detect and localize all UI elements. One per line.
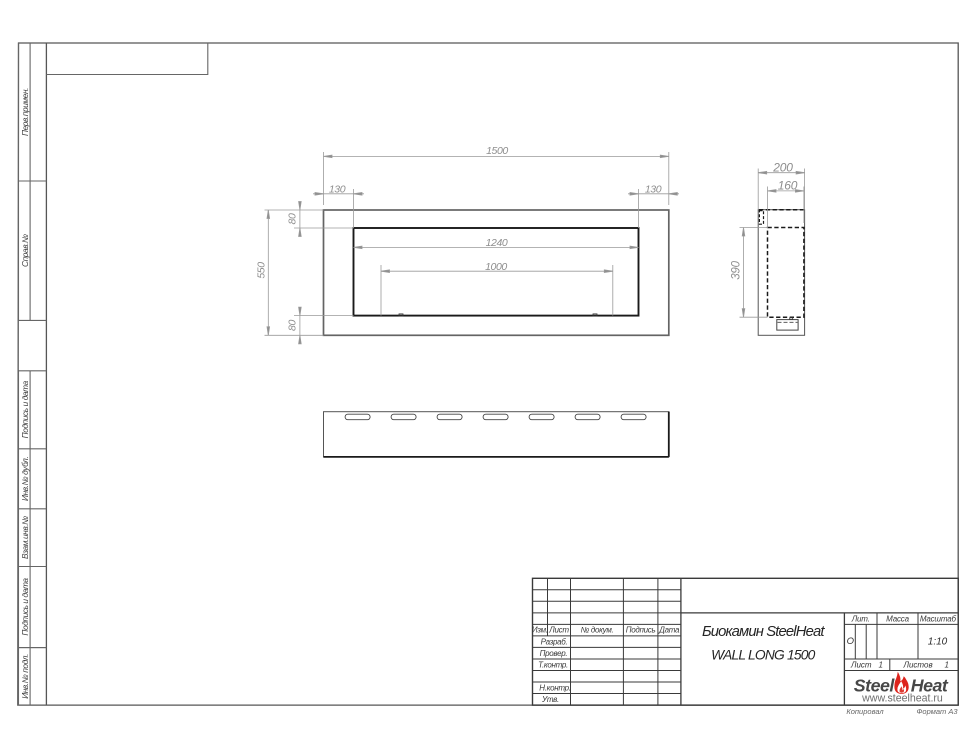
svg-text:Листов: Листов bbox=[903, 661, 933, 670]
svg-text:Подпись и дата: Подпись и дата bbox=[20, 578, 30, 636]
svg-text:160: 160 bbox=[778, 178, 798, 192]
svg-text:Копировал: Копировал bbox=[846, 707, 884, 716]
svg-text:Т.контр.: Т.контр. bbox=[538, 660, 568, 669]
svg-text:WALL LONG 1500: WALL LONG 1500 bbox=[711, 647, 815, 662]
svg-text:Взам.инв.№: Взам.инв.№ bbox=[20, 516, 30, 559]
svg-text:Н.контр.: Н.контр. bbox=[539, 683, 571, 692]
svg-text:Изм.: Изм. bbox=[532, 626, 548, 635]
svg-text:Подпись и дата: Подпись и дата bbox=[20, 380, 30, 438]
svg-text:Лист: Лист bbox=[548, 626, 569, 635]
svg-text:Утв.: Утв. bbox=[541, 695, 559, 704]
svg-text:550: 550 bbox=[255, 262, 267, 279]
svg-text:Формат А3: Формат А3 bbox=[916, 707, 958, 716]
svg-text:1000: 1000 bbox=[485, 261, 507, 273]
svg-text:1240: 1240 bbox=[486, 237, 508, 249]
svg-text:390: 390 bbox=[731, 260, 743, 279]
svg-text:80: 80 bbox=[287, 320, 299, 331]
svg-text:Инв.№ подл.: Инв.№ подл. bbox=[20, 654, 30, 699]
svg-text:Дата: Дата bbox=[658, 626, 680, 635]
svg-text:Провер.: Провер. bbox=[540, 649, 568, 658]
svg-text:№ докум.: № докум. bbox=[581, 626, 614, 635]
svg-text:1500: 1500 bbox=[486, 145, 508, 157]
svg-text:1:10: 1:10 bbox=[928, 637, 948, 648]
svg-text:Справ.№: Справ.№ bbox=[20, 234, 30, 267]
svg-text:200: 200 bbox=[772, 160, 793, 174]
svg-text:Лист: Лист bbox=[850, 661, 872, 670]
svg-text:Разраб.: Разраб. bbox=[541, 637, 568, 646]
svg-text:Перв.примен.: Перв.примен. bbox=[20, 88, 30, 136]
svg-text:80: 80 bbox=[287, 213, 299, 224]
svg-text:Инв.№ дубл.: Инв.№ дубл. bbox=[20, 457, 30, 501]
svg-text:www.steelheat.ru: www.steelheat.ru bbox=[861, 693, 943, 705]
svg-text:О: О bbox=[847, 636, 855, 647]
svg-text:Лит.: Лит. bbox=[851, 614, 870, 623]
svg-text:Масса: Масса bbox=[886, 615, 909, 624]
svg-text:Биокамин SteelHeat: Биокамин SteelHeat bbox=[702, 624, 825, 640]
svg-text:130: 130 bbox=[645, 183, 662, 195]
svg-text:Подпись: Подпись bbox=[626, 626, 656, 635]
svg-text:Масштаб: Масштаб bbox=[920, 615, 957, 624]
svg-text:130: 130 bbox=[329, 183, 346, 195]
svg-text:1: 1 bbox=[945, 661, 949, 670]
svg-text:1: 1 bbox=[879, 661, 883, 670]
